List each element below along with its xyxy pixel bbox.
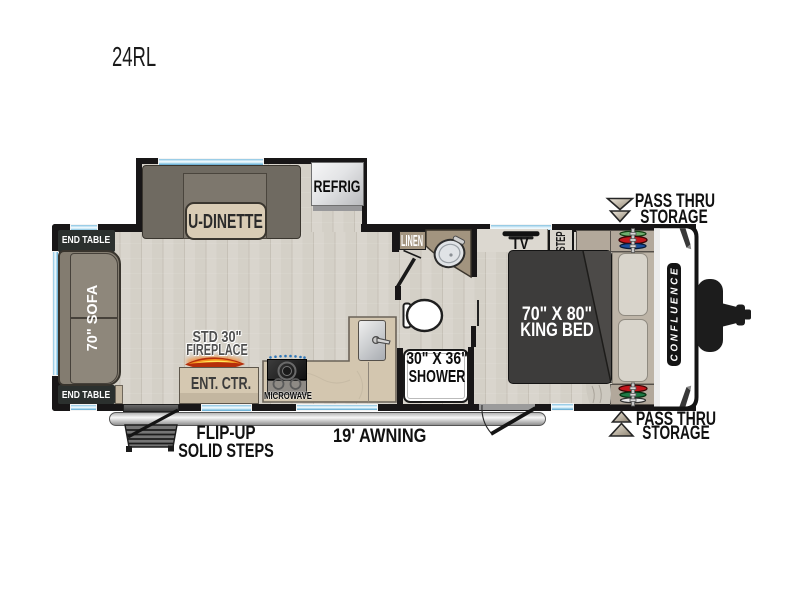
svg-text:CONFLUENCE: CONFLUENCE xyxy=(669,268,680,361)
svg-text:STEP: STEP xyxy=(554,231,568,251)
